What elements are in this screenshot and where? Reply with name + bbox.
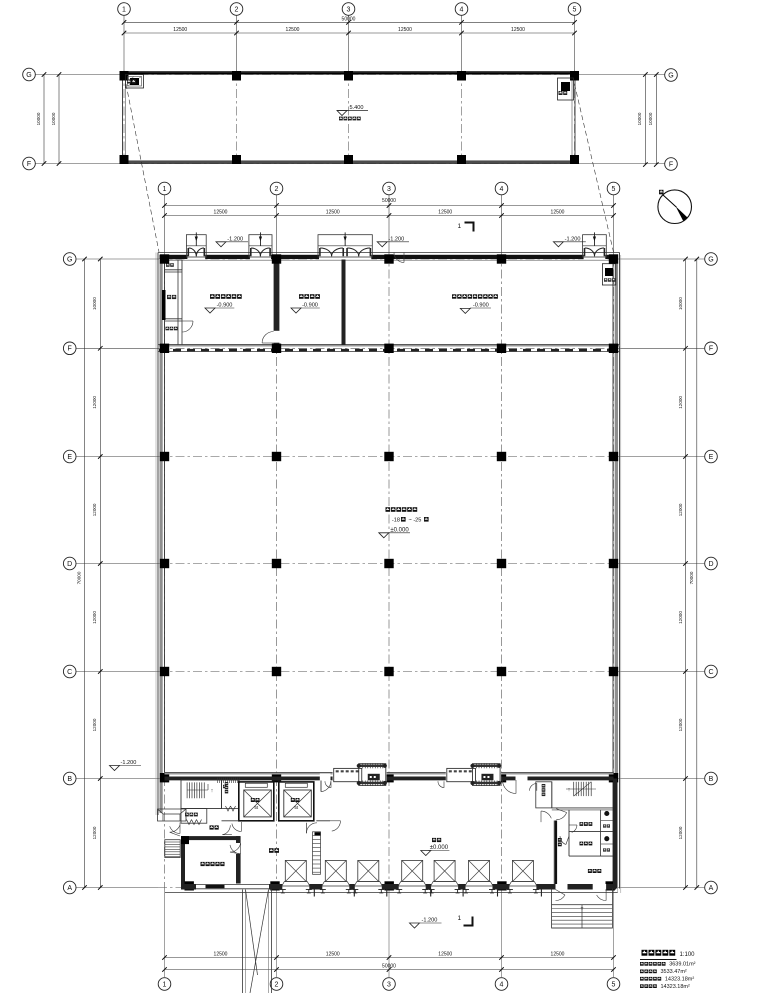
svg-text:10000: 10000 bbox=[648, 112, 653, 125]
svg-text:12500: 12500 bbox=[214, 951, 228, 957]
svg-text:C: C bbox=[708, 669, 713, 676]
svg-text:±0.000: ±0.000 bbox=[430, 845, 449, 851]
svg-text:B: B bbox=[709, 776, 714, 783]
svg-text:F: F bbox=[68, 346, 72, 353]
svg-text:10000: 10000 bbox=[637, 112, 642, 125]
svg-text:3639.01m²: 3639.01m² bbox=[669, 962, 695, 968]
svg-text:B: B bbox=[67, 776, 72, 783]
svg-text:4: 4 bbox=[500, 981, 504, 988]
svg-text:G: G bbox=[67, 256, 72, 263]
svg-text:4: 4 bbox=[460, 6, 464, 13]
svg-text:1: 1 bbox=[122, 6, 126, 13]
svg-text:A: A bbox=[709, 885, 714, 892]
svg-text:5: 5 bbox=[573, 6, 577, 13]
svg-text:-1.200: -1.200 bbox=[422, 918, 438, 924]
svg-text:12500: 12500 bbox=[398, 27, 412, 33]
svg-text:14323.18m²: 14323.18m² bbox=[665, 976, 695, 982]
svg-text:-1.200: -1.200 bbox=[565, 236, 581, 242]
svg-text:D: D bbox=[67, 561, 72, 568]
svg-text:C: C bbox=[67, 669, 72, 676]
svg-text:12000: 12000 bbox=[678, 503, 683, 516]
svg-text:12000: 12000 bbox=[678, 396, 683, 409]
svg-text:1: 1 bbox=[163, 186, 167, 193]
svg-text:12500: 12500 bbox=[438, 951, 452, 957]
svg-text:-1.200: -1.200 bbox=[388, 236, 404, 242]
svg-text:14323.18m²: 14323.18m² bbox=[660, 984, 690, 990]
svg-text:G: G bbox=[668, 72, 673, 79]
svg-text:T: T bbox=[581, 906, 584, 911]
svg-text:70000: 70000 bbox=[689, 571, 694, 584]
svg-text:50000: 50000 bbox=[382, 198, 396, 204]
svg-text:50000: 50000 bbox=[382, 963, 396, 969]
svg-text:D: D bbox=[708, 561, 713, 568]
svg-text:-1.200: -1.200 bbox=[227, 236, 243, 242]
svg-text:3: 3 bbox=[347, 6, 351, 13]
svg-text:3: 3 bbox=[387, 186, 391, 193]
svg-text:F: F bbox=[709, 346, 713, 353]
svg-text:F: F bbox=[669, 161, 673, 168]
svg-text:E: E bbox=[709, 454, 714, 461]
svg-text:E: E bbox=[67, 454, 72, 461]
svg-text:12500: 12500 bbox=[511, 27, 525, 33]
svg-text:-18: -18 bbox=[392, 517, 400, 523]
svg-text:12000: 12000 bbox=[92, 396, 97, 409]
svg-text:↑: ↑ bbox=[568, 787, 571, 793]
svg-text:12000: 12000 bbox=[678, 718, 683, 731]
svg-text:±0.000: ±0.000 bbox=[390, 527, 409, 533]
svg-text:12000: 12000 bbox=[678, 826, 683, 839]
svg-text:A: A bbox=[67, 885, 72, 892]
svg-text:12000: 12000 bbox=[92, 718, 97, 731]
svg-text:F: F bbox=[27, 161, 31, 168]
svg-text:12500: 12500 bbox=[326, 209, 340, 215]
svg-text:5: 5 bbox=[612, 186, 616, 193]
svg-text:G: G bbox=[26, 72, 31, 79]
svg-text:12000: 12000 bbox=[92, 503, 97, 516]
svg-text:1: 1 bbox=[458, 915, 462, 922]
svg-text:1: 1 bbox=[163, 981, 167, 988]
svg-text:3533.47m²: 3533.47m² bbox=[660, 969, 686, 975]
svg-text:3: 3 bbox=[387, 981, 391, 988]
svg-text:1:100: 1:100 bbox=[680, 952, 696, 958]
svg-text:↑: ↑ bbox=[211, 788, 214, 794]
svg-text:2: 2 bbox=[275, 981, 279, 988]
svg-text:G: G bbox=[708, 256, 713, 263]
svg-text:10000: 10000 bbox=[36, 112, 41, 125]
svg-text:5.400: 5.400 bbox=[350, 105, 364, 111]
svg-text:1: 1 bbox=[458, 223, 462, 230]
svg-text:12500: 12500 bbox=[173, 27, 187, 33]
svg-text:~ -25: ~ -25 bbox=[409, 517, 422, 523]
svg-text:10000: 10000 bbox=[678, 297, 683, 310]
svg-text:12500: 12500 bbox=[551, 209, 565, 215]
svg-text:12500: 12500 bbox=[438, 209, 452, 215]
svg-text:2: 2 bbox=[235, 6, 239, 13]
svg-text:12500: 12500 bbox=[551, 951, 565, 957]
svg-text:12000: 12000 bbox=[678, 611, 683, 624]
svg-text:12500: 12500 bbox=[286, 27, 300, 33]
svg-text:12000: 12000 bbox=[92, 611, 97, 624]
svg-text:12500: 12500 bbox=[326, 951, 340, 957]
svg-text:5: 5 bbox=[612, 981, 616, 988]
svg-text:12000: 12000 bbox=[92, 826, 97, 839]
svg-text:2: 2 bbox=[275, 186, 279, 193]
svg-text:70000: 70000 bbox=[77, 571, 82, 584]
svg-text:10000: 10000 bbox=[92, 297, 97, 310]
svg-text:4: 4 bbox=[500, 186, 504, 193]
svg-text:12500: 12500 bbox=[214, 209, 228, 215]
svg-text:10000: 10000 bbox=[51, 112, 56, 125]
svg-text:-1.200: -1.200 bbox=[121, 760, 137, 766]
